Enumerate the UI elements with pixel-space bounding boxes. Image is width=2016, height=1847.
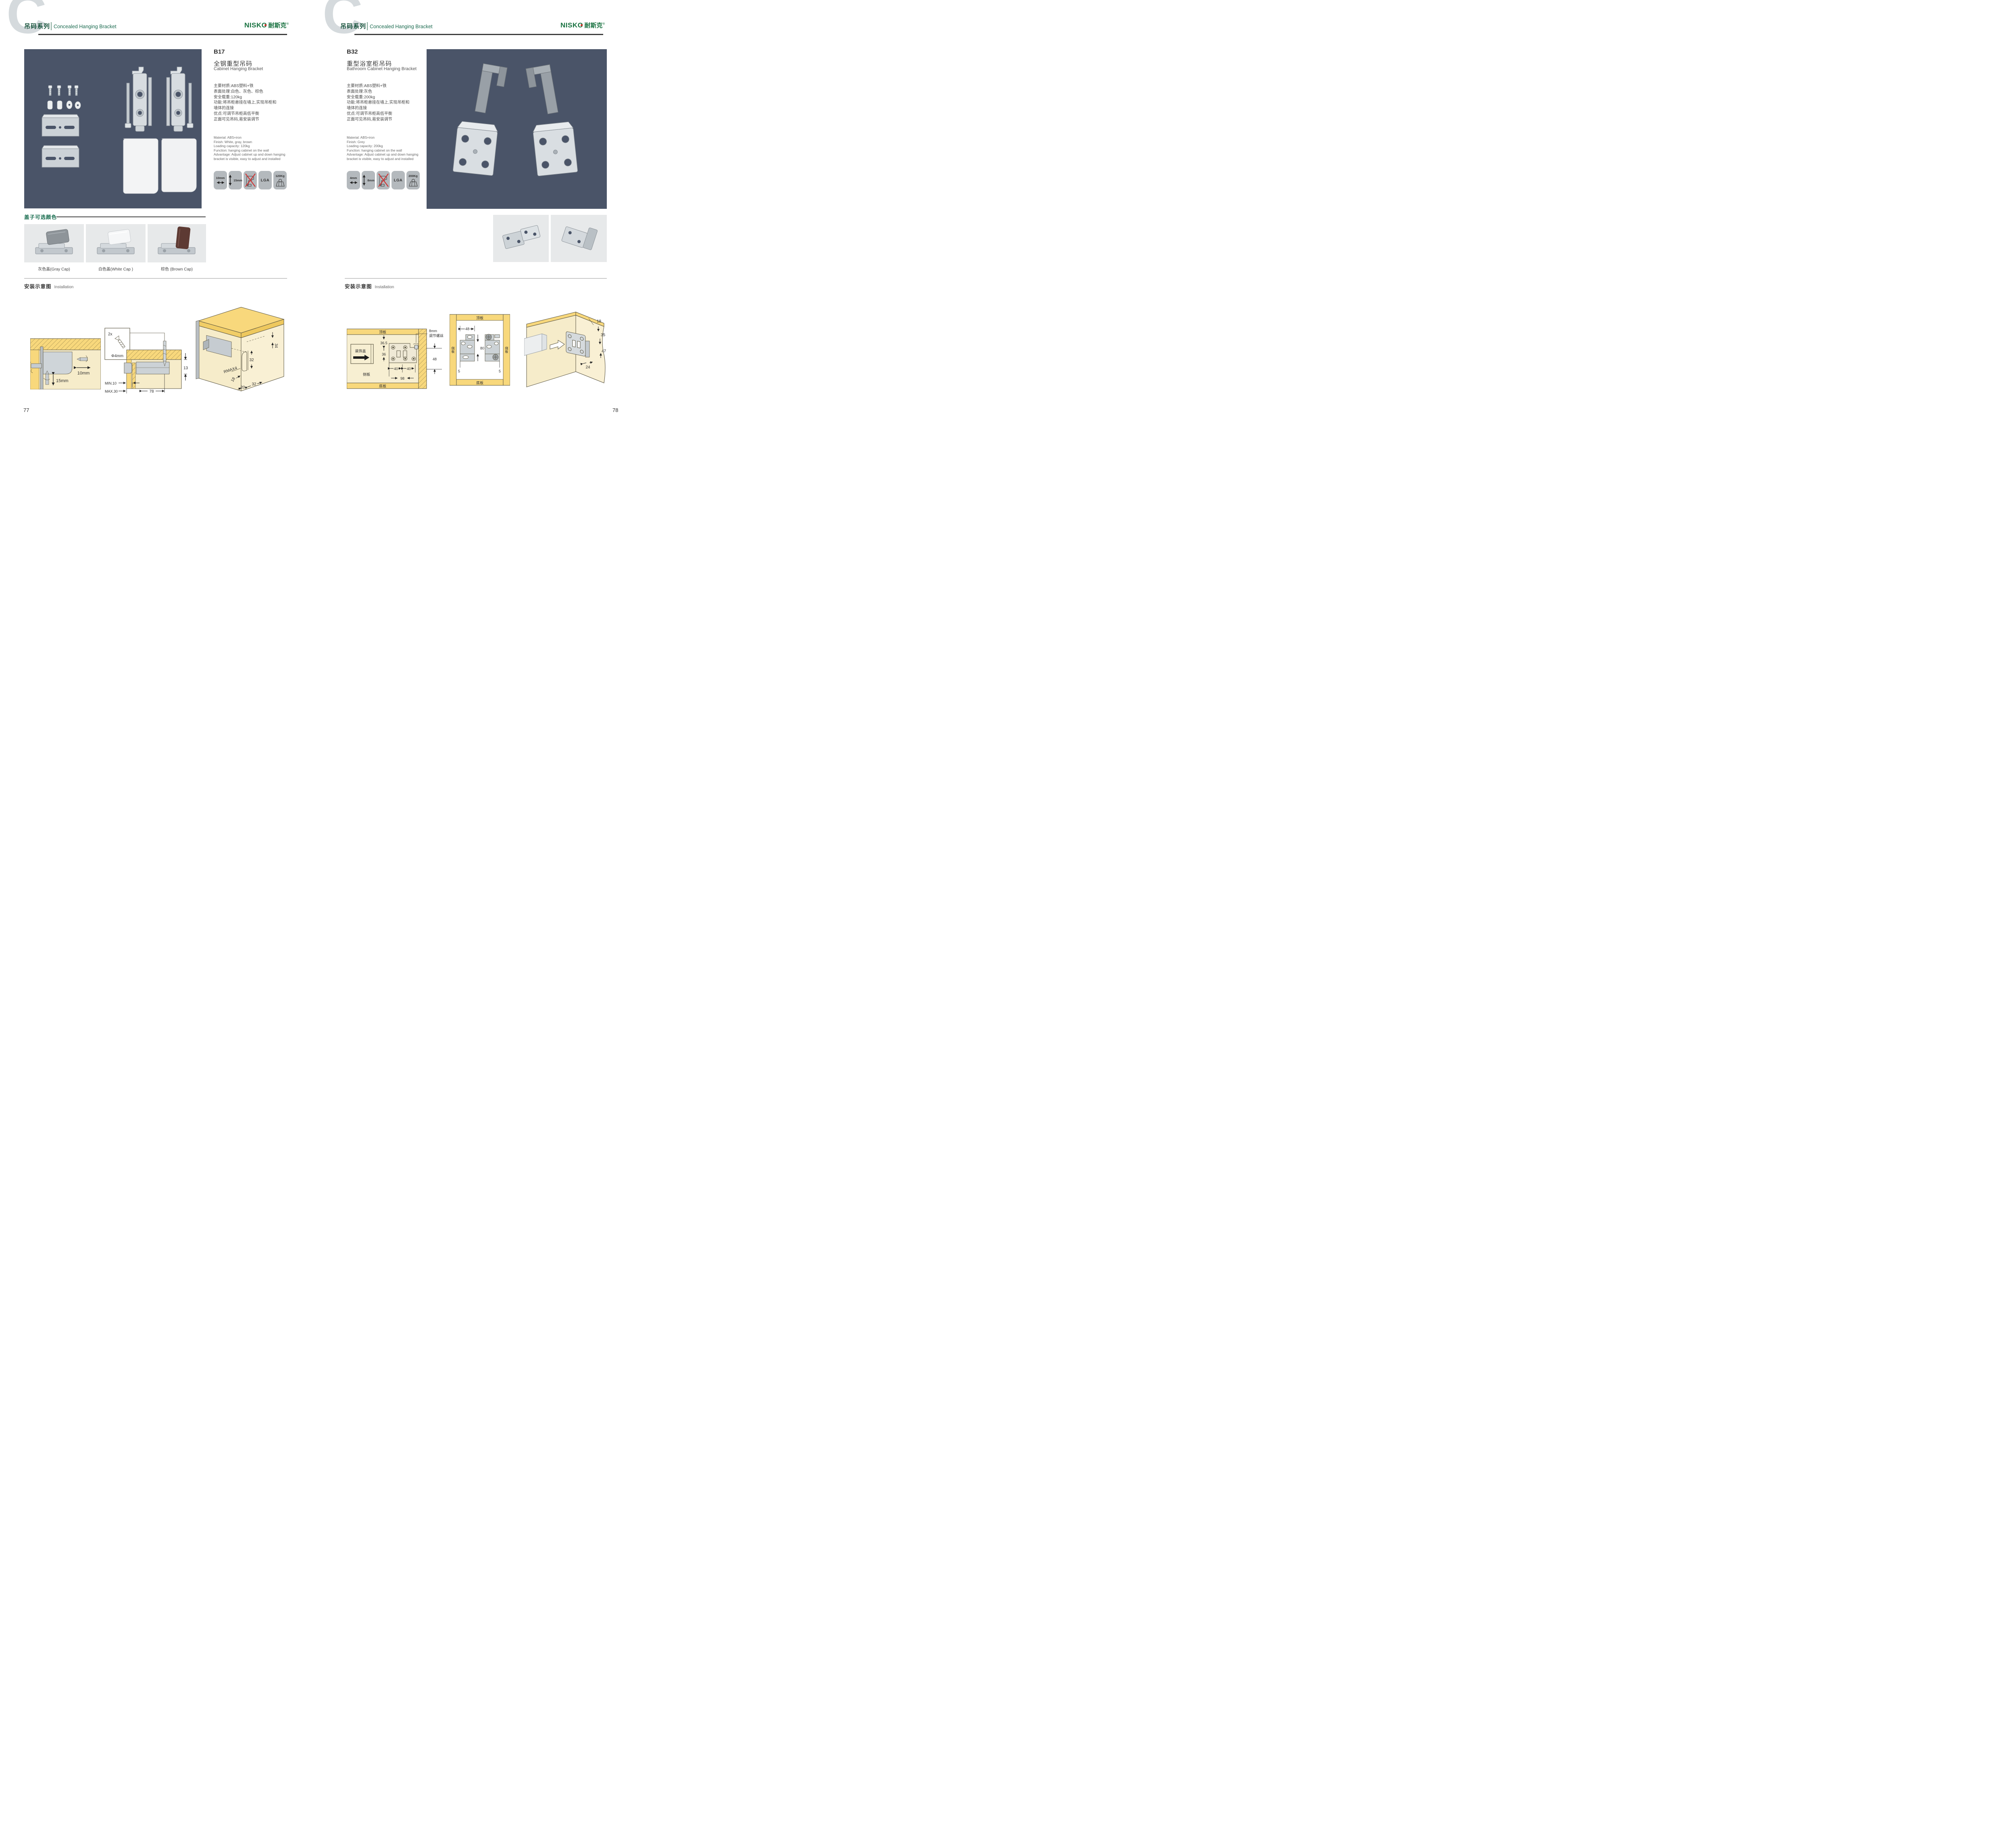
badge-load: 200Kg bbox=[406, 171, 420, 189]
spec-line: Loading capacity: 120kg bbox=[214, 144, 285, 148]
series-title-en: Concealed Hanging Bracket bbox=[370, 24, 433, 29]
spec-line: Loading capacity: 200kg bbox=[347, 144, 419, 148]
page-number: 77 bbox=[23, 407, 29, 413]
spec-line: 安全载重:200kg bbox=[347, 95, 410, 100]
svg-text:2x: 2x bbox=[108, 332, 112, 337]
section-divider bbox=[24, 278, 287, 279]
spec-line: Finish: Grey bbox=[347, 140, 419, 144]
specs-cn: 主要材质:ABS塑料+铁 表面处理:灰色 安全载重:200kg 功能:将吊柜悬挂… bbox=[347, 83, 410, 123]
svg-text:15mm: 15mm bbox=[56, 379, 69, 383]
detail-photo-plates bbox=[493, 215, 549, 262]
spec-line: 主要材质:ABS塑料+铁 bbox=[347, 83, 410, 89]
brand-logo-cn: 耐斯克 bbox=[584, 22, 602, 29]
registered-mark: ® bbox=[602, 22, 605, 26]
svg-text:36.5: 36.5 bbox=[380, 341, 387, 345]
spec-line: 主要材质:ABS塑料+铁 bbox=[214, 83, 277, 89]
svg-text:5: 5 bbox=[499, 369, 501, 373]
spec-line: 功能:将吊柜悬挂在墙上,实现吊柜和 bbox=[214, 100, 277, 106]
svg-text:80: 80 bbox=[480, 346, 484, 350]
horizontal-arrow-icon bbox=[348, 181, 359, 185]
install-diagram-front: 顶板 底板 装饰盖 侧板 36.5 36 bbox=[347, 327, 446, 390]
svg-text:40: 40 bbox=[394, 367, 398, 371]
header-rule bbox=[38, 34, 287, 35]
brand-logo-cn: 耐斯克 bbox=[268, 22, 286, 29]
svg-text:40: 40 bbox=[407, 367, 411, 371]
svg-text:48: 48 bbox=[433, 357, 437, 361]
feature-badges: 4mm 8mm LGA bbox=[347, 171, 420, 189]
spec-line: 优点:可调节吊柜高低平衡 bbox=[347, 111, 410, 117]
product-name-en: Bathroom Cabinet Hanging Bracket bbox=[347, 67, 417, 71]
spec-line: 正面可见吊码,易安装调节 bbox=[214, 117, 277, 123]
spec-line: Function: hanging cabinet on the wall bbox=[214, 148, 285, 153]
svg-text:侧板: 侧板 bbox=[505, 346, 508, 354]
weight-icon bbox=[408, 179, 419, 187]
spec-line: 优点:可调节吊柜高低平衡 bbox=[214, 111, 277, 117]
spec-line: Material: ABS+iron bbox=[347, 135, 419, 140]
install-diagram-perspective: 34 32 RMAX4 18 20 32 bbox=[193, 303, 286, 394]
specs-cn: 主要材质:ABS塑料+铁 表面处理:白色、灰色、棕色 安全载重:120kg 功能… bbox=[214, 83, 277, 123]
spec-line: bracket is visible, easy to adjust and i… bbox=[347, 157, 419, 161]
page-78: C 吊码系列 Concealed Hanging Bracket NISKO耐斯… bbox=[316, 0, 632, 432]
registered-mark: ® bbox=[286, 22, 289, 26]
spec-line: 墙体的连接 bbox=[214, 106, 277, 111]
svg-text:78: 78 bbox=[149, 389, 154, 394]
b32-photo-illustration bbox=[427, 49, 607, 209]
svg-text:47: 47 bbox=[602, 349, 606, 354]
series-title-en: Concealed Hanging Bracket bbox=[54, 24, 117, 29]
svg-text:20: 20 bbox=[240, 385, 245, 390]
weight-icon bbox=[275, 179, 286, 187]
cap-white-illustration bbox=[86, 224, 146, 262]
product-photo-b17 bbox=[24, 49, 202, 208]
spec-line: 正面可见吊码,易安装调节 bbox=[347, 117, 410, 123]
installation-title-cn: 安装示意图 bbox=[345, 284, 372, 289]
svg-text:10mm: 10mm bbox=[77, 371, 90, 376]
product-code: B17 bbox=[214, 48, 225, 55]
badge-height: 8mm bbox=[362, 171, 375, 189]
install-diagram-section: 10mm 15mm bbox=[30, 330, 101, 389]
svg-text:调节螺丝: 调节螺丝 bbox=[429, 333, 444, 338]
svg-text:18: 18 bbox=[597, 319, 602, 324]
badge-width: 4mm bbox=[347, 171, 360, 189]
spec-line: Function: hanging cabinet on the wall bbox=[347, 148, 419, 153]
catalog-spread: C 吊码系列 Concealed Hanging Bracket NISKO耐斯… bbox=[0, 0, 632, 432]
detail-plates-illustration bbox=[493, 215, 549, 262]
svg-text:5: 5 bbox=[458, 369, 460, 373]
feature-badges: 10mm 15mm LGA bbox=[214, 171, 287, 189]
svg-text:MIN.10: MIN.10 bbox=[105, 381, 117, 385]
svg-text:32: 32 bbox=[249, 358, 254, 362]
product-code: B32 bbox=[347, 48, 358, 55]
installation-title-en: Installation bbox=[375, 285, 394, 289]
spec-line: 墙体的连接 bbox=[347, 106, 410, 111]
series-title-cn: 吊码系列 bbox=[340, 22, 366, 30]
svg-text:顶板: 顶板 bbox=[476, 316, 483, 320]
brand-logo-latin: NISKO bbox=[560, 21, 583, 29]
spec-line: bracket is visible, easy to adjust and i… bbox=[214, 157, 285, 161]
brand-logo: NISKO耐斯克® bbox=[244, 21, 289, 29]
svg-text:Φ4mm: Φ4mm bbox=[111, 354, 123, 358]
page-number: 78 bbox=[612, 407, 618, 413]
badge-no-drill bbox=[377, 171, 390, 189]
cap-photo-gray bbox=[24, 224, 84, 262]
svg-text:侧板: 侧板 bbox=[451, 346, 455, 354]
badge-width: 10mm bbox=[214, 171, 227, 189]
svg-text:8mm: 8mm bbox=[429, 329, 437, 333]
svg-text:34: 34 bbox=[274, 343, 278, 348]
svg-text:48: 48 bbox=[465, 327, 469, 331]
brand-logo: NISKO耐斯克® bbox=[560, 21, 605, 29]
b17-photo-illustration bbox=[24, 49, 202, 208]
header-divider bbox=[367, 22, 368, 30]
svg-text:底板: 底板 bbox=[379, 384, 386, 388]
spec-line: Finish: White, gray, brown bbox=[214, 140, 285, 144]
installation-heading: 安装示意图Installation bbox=[345, 282, 394, 290]
svg-text:98: 98 bbox=[400, 376, 404, 381]
cap-label-gray: 灰色盖(Gray Cap) bbox=[24, 266, 84, 272]
specs-en: Material: ABS+iron Finish: Grey Loading … bbox=[347, 135, 419, 161]
installation-title-cn: 安装示意图 bbox=[24, 284, 52, 289]
spec-line: 安全载重:120kg bbox=[214, 95, 277, 100]
header-divider bbox=[51, 22, 52, 30]
badge-lga: LGA bbox=[258, 171, 272, 189]
no-drill-icon bbox=[378, 173, 389, 188]
series-watermark: C bbox=[6, 0, 47, 42]
svg-text:35: 35 bbox=[601, 333, 606, 337]
section-divider bbox=[345, 278, 607, 279]
cap-gray-illustration bbox=[24, 224, 84, 262]
svg-text:13: 13 bbox=[183, 366, 188, 370]
detail-bracket-illustration bbox=[551, 215, 607, 262]
spec-line: 功能:将吊柜悬挂在墙上,实现吊柜和 bbox=[347, 100, 410, 106]
specs-en: Material: ABS+iron Finish: White, gray, … bbox=[214, 135, 285, 161]
install-diagram-dimensions: 2x Φ4mm 13 MIN.10 MAX. bbox=[104, 326, 189, 394]
spec-line: 表面处理:灰色 bbox=[347, 89, 410, 95]
header-rule bbox=[354, 34, 603, 35]
badge-height: 15mm bbox=[229, 171, 242, 189]
caps-section-title: 盖子可选颜色 bbox=[24, 213, 57, 220]
horizontal-arrow-icon bbox=[215, 181, 226, 185]
install-diagram-wall-perspective: 18 35 47 24 bbox=[524, 310, 610, 390]
badge-no-drill bbox=[244, 171, 257, 189]
detail-photo-bracket bbox=[551, 215, 607, 262]
caps-rule bbox=[56, 216, 206, 217]
cap-label-white: 白色盖(White Cap ) bbox=[86, 266, 146, 272]
series-title-cn: 吊码系列 bbox=[24, 22, 50, 30]
no-drill-icon bbox=[245, 173, 256, 188]
cap-photo-brown bbox=[148, 224, 206, 262]
svg-text:36: 36 bbox=[382, 352, 386, 356]
brand-logo-latin: NISKO bbox=[244, 21, 267, 29]
cap-photo-white bbox=[86, 224, 146, 262]
spec-line: Advantage: Adjust cabinet up and down ha… bbox=[214, 152, 285, 157]
svg-text:侧板: 侧板 bbox=[363, 372, 370, 376]
svg-text:32: 32 bbox=[252, 382, 256, 387]
product-name-en: Cabinet Hanging Bracket bbox=[214, 67, 263, 71]
badge-lga: LGA bbox=[392, 171, 405, 189]
installation-heading: 安装示意图Installation bbox=[24, 282, 73, 290]
badge-load: 120Kg bbox=[273, 171, 287, 189]
page-77: C 吊码系列 Concealed Hanging Bracket NISKO耐斯… bbox=[0, 0, 316, 432]
svg-text:底板: 底板 bbox=[476, 381, 483, 385]
svg-text:MAX.30: MAX.30 bbox=[105, 389, 118, 393]
svg-text:24: 24 bbox=[585, 365, 590, 370]
svg-text:装饰盖: 装饰盖 bbox=[355, 349, 366, 353]
install-diagram-cabinet: 顶板 底板 侧板 侧板 48 bbox=[450, 311, 510, 389]
svg-text:顶板: 顶板 bbox=[379, 330, 386, 334]
vertical-arrow-icon bbox=[362, 173, 366, 187]
cap-label-brown: 棕色 (Brown Cap) bbox=[148, 266, 206, 272]
product-photo-b32 bbox=[427, 49, 607, 209]
series-watermark: C bbox=[323, 0, 363, 42]
spec-line: Material: ABS+iron bbox=[214, 135, 285, 140]
cap-brown-illustration bbox=[148, 224, 206, 262]
spec-line: Advantage: Adjust cabinet up and down ha… bbox=[347, 152, 419, 157]
installation-title-en: Installation bbox=[54, 285, 74, 289]
vertical-arrow-icon bbox=[228, 173, 232, 187]
spec-line: 表面处理:白色、灰色、棕色 bbox=[214, 89, 277, 95]
